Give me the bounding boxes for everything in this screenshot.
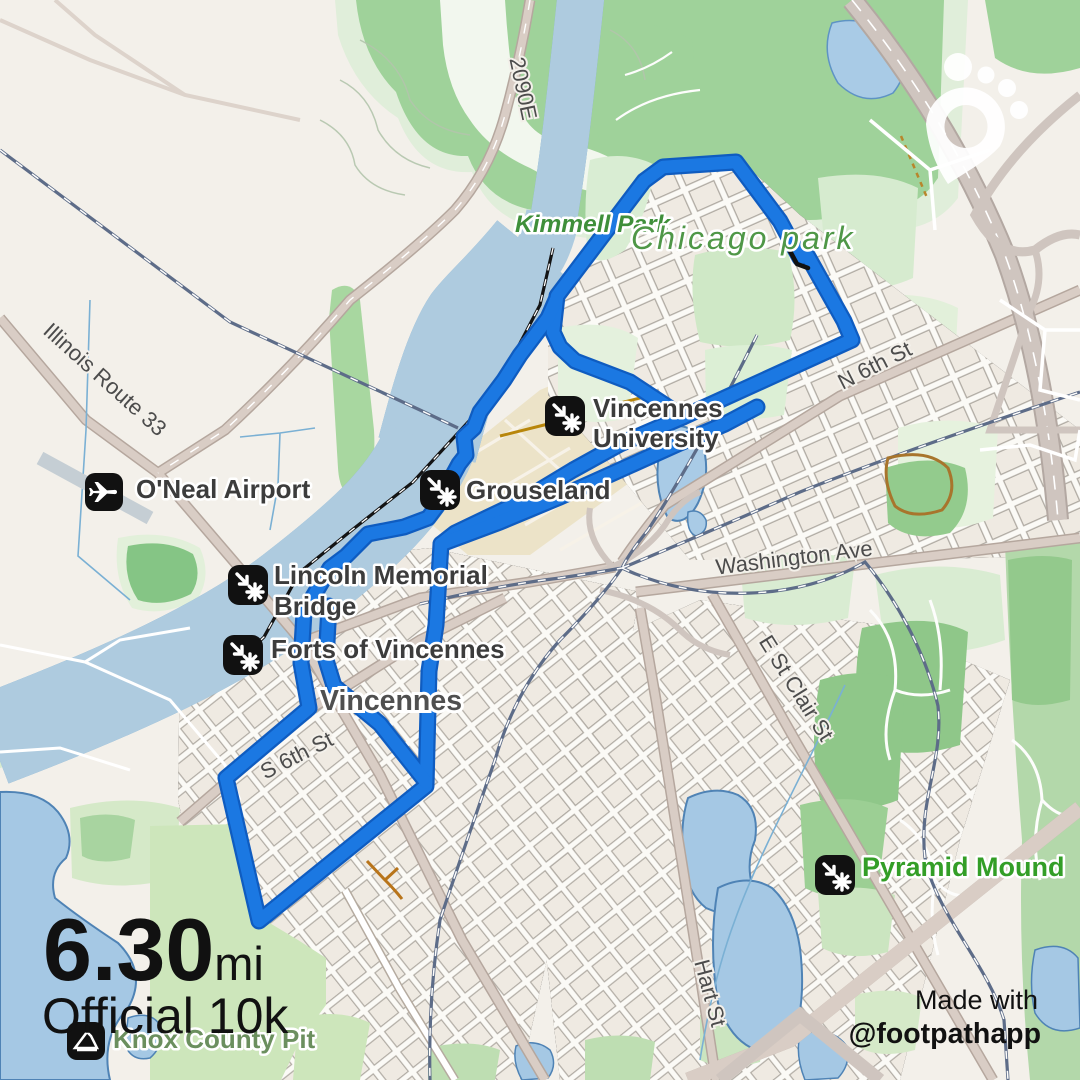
svg-text:Grouseland: Grouseland	[466, 475, 610, 505]
svg-text:Bridge: Bridge	[274, 591, 356, 621]
svg-text:Official 10k: Official 10k	[42, 988, 289, 1044]
svg-text:Pyramid Mound: Pyramid Mound	[862, 852, 1065, 882]
svg-text:Vincennes: Vincennes	[320, 685, 462, 717]
svg-text:@footpathapp: @footpathapp	[849, 1018, 1041, 1050]
svg-text:Vincennes: Vincennes	[593, 393, 723, 423]
svg-text:Lincoln Memorial: Lincoln Memorial	[274, 560, 488, 590]
svg-text:Made with: Made with	[915, 985, 1038, 1015]
svg-text:Chicago park: Chicago park	[631, 220, 856, 256]
svg-text:University: University	[593, 423, 719, 453]
svg-text:O'Neal Airport: O'Neal Airport	[136, 474, 311, 504]
svg-text:Forts of Vincennes: Forts of Vincennes	[271, 634, 505, 664]
